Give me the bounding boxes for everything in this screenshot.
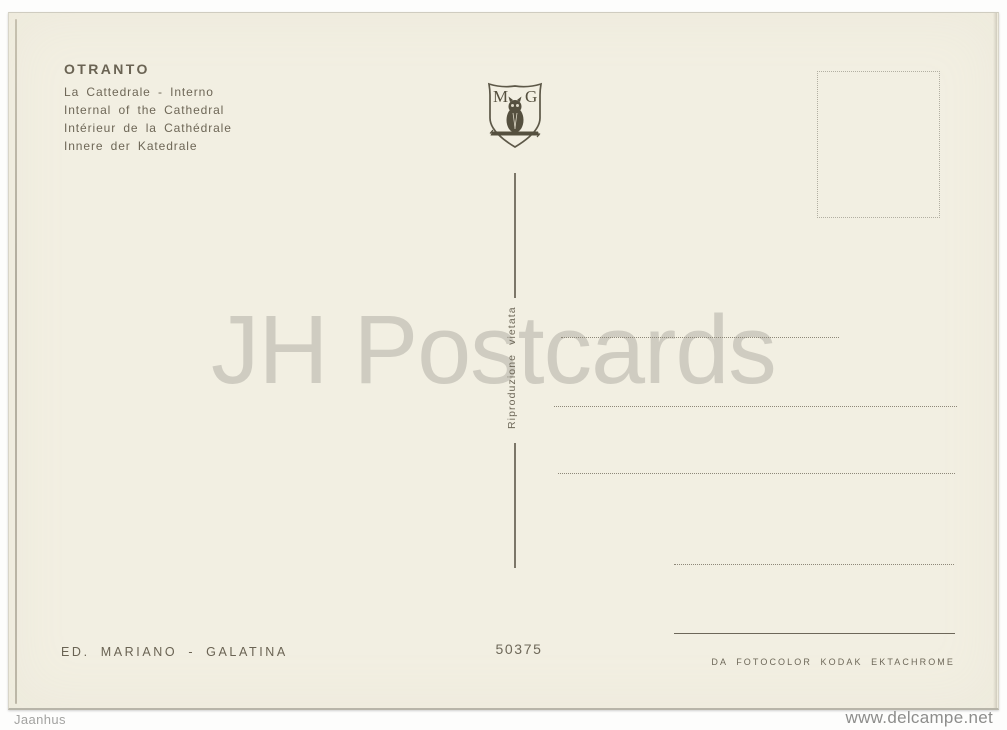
divider-line-top [514, 173, 516, 298]
divider-line-bottom [514, 443, 516, 568]
reproduction-notice: Riproduzione vietata [506, 306, 524, 430]
stamp-box [817, 71, 940, 218]
postcard-print-layer: OTRANTO La Cattedrale - Interno Internal… [9, 13, 998, 708]
publisher-imprint: ED. MARIANO - GALATINA [61, 645, 288, 659]
caption-block: OTRANTO La Cattedrale - Interno Internal… [64, 61, 232, 155]
caption-italian: La Cattedrale - Interno [64, 83, 232, 101]
marketplace-url: www.delcampe.net [846, 708, 993, 728]
serial-number: 50375 [464, 641, 574, 657]
postcard-back: JH Postcards OTRANTO La Cattedrale - Int… [8, 12, 999, 710]
collector-name: Jaanhus [14, 712, 66, 727]
scanned-postcard-page: JH Postcards OTRANTO La Cattedrale - Int… [0, 0, 1007, 730]
address-line [554, 406, 957, 407]
caption-french: Intérieur de la Cathédrale [64, 119, 232, 137]
credit-rule [674, 633, 955, 634]
crest-initial-m: M [493, 87, 508, 106]
film-credit: DA FOTOCOLOR KODAK EKTACHROME [649, 657, 955, 667]
address-line [558, 473, 955, 474]
caption-english: Internal of the Cathedral [64, 101, 232, 119]
card-left-crease [15, 19, 17, 704]
card-right-edge-shadow [993, 13, 997, 708]
publisher-crest-owl-icon: M G [482, 79, 548, 153]
caption-german: Innere der Katedrale [64, 137, 232, 155]
address-line [674, 564, 954, 565]
crest-initial-g: G [525, 87, 537, 106]
postcard-title: OTRANTO [64, 61, 232, 77]
address-line [561, 337, 839, 338]
